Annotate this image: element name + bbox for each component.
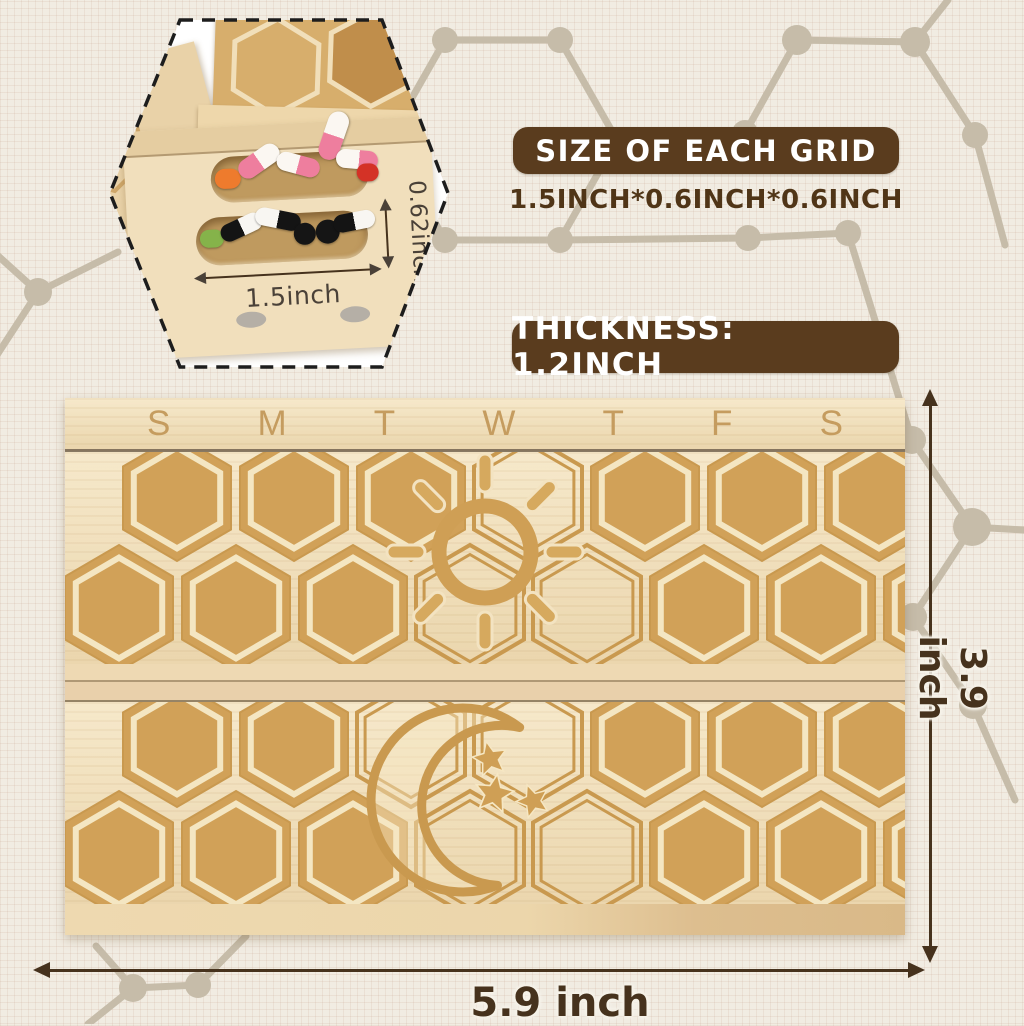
night-row-bar bbox=[65, 700, 905, 909]
bottom-plank bbox=[65, 904, 905, 935]
pill-orange bbox=[214, 168, 241, 189]
height-dimension-label: 3.9 inch bbox=[911, 598, 993, 758]
grid-depth-arrow-icon bbox=[385, 208, 390, 258]
day-labels-plank: S M T W T F S bbox=[65, 398, 905, 452]
middle-planks bbox=[65, 664, 905, 700]
width-dimension-label: 5.9 inch bbox=[450, 980, 670, 1026]
day-label-saturday: S bbox=[820, 404, 843, 444]
grid-depth-label: 0.62inch bbox=[402, 156, 436, 307]
day-label-tuesday: T bbox=[374, 404, 395, 444]
thickness-callout-label: THICKNESS: 1.2INCH bbox=[512, 311, 899, 383]
day-label-friday: F bbox=[711, 404, 732, 444]
pill-red bbox=[356, 163, 379, 182]
grid-width-arrow-icon bbox=[204, 268, 372, 279]
thumb-notch bbox=[236, 311, 267, 329]
day-row-bar bbox=[65, 452, 905, 666]
honeycomb-engraving-night bbox=[65, 702, 905, 906]
day-label-monday: M bbox=[258, 404, 287, 444]
thickness-callout-banner: THICKNESS: 1.2INCH bbox=[512, 321, 899, 373]
thumb-notch bbox=[340, 306, 371, 324]
product-infographic: { "inset": { "grid_width_label": "1.5inc… bbox=[0, 0, 1024, 1024]
inset-photo-hexagon: 1.5inch 0.62inch bbox=[110, 20, 448, 367]
size-callout-value: 1.5INCH*0.6INCH*0.6INCH bbox=[505, 185, 907, 215]
pill-organizer-photo: S M T W T F S bbox=[65, 398, 905, 935]
size-callout-title: SIZE OF EACH GRID bbox=[535, 134, 877, 168]
width-dimension-arrow-icon bbox=[48, 969, 910, 972]
inset-photo: 1.5inch 0.62inch bbox=[110, 20, 448, 367]
day-label-sunday: S bbox=[147, 404, 170, 444]
day-label-thursday: T bbox=[603, 404, 624, 444]
open-pill-box: 1.5inch 0.62inch bbox=[122, 116, 442, 360]
size-callout-banner: SIZE OF EACH GRID bbox=[513, 127, 899, 174]
honeycomb-engraving-day bbox=[65, 452, 905, 664]
day-label-wednesday: W bbox=[482, 404, 515, 444]
